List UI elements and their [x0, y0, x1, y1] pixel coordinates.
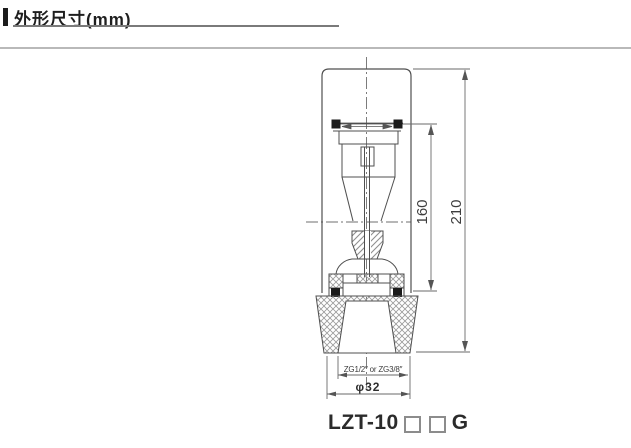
dim-label-overall-height: 210 — [448, 199, 465, 224]
cap-inner-arrows — [342, 124, 392, 129]
dim-label-thread: ZG1/2″ or ZG3/8″ — [344, 365, 403, 374]
model-prefix: LZT-10 — [328, 411, 399, 435]
flowmeter-dimension-drawing: 210 160 ZG1/2″ or ZG3/8″ φ32 — [0, 0, 631, 448]
top-cap — [332, 124, 403, 178]
model-designation: LZT-10 G — [328, 411, 469, 435]
model-suffix: G — [452, 411, 469, 435]
float — [352, 231, 383, 259]
dim-label-diameter: φ32 — [356, 380, 381, 394]
metering-cone — [342, 177, 395, 221]
model-placeholder-box — [404, 416, 421, 433]
model-placeholder-box — [429, 416, 446, 433]
mid-fitting — [329, 274, 404, 296]
valve-bell — [336, 259, 398, 274]
dim-label-tube-height: 160 — [414, 199, 431, 224]
base-nut — [316, 296, 418, 353]
